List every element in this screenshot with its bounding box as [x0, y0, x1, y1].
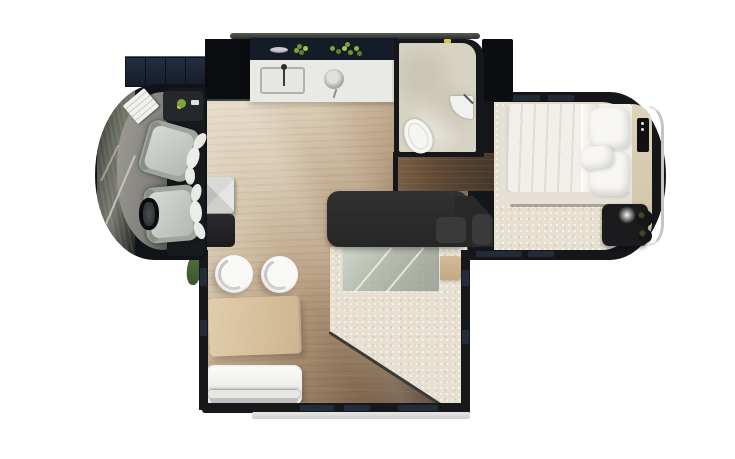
floorplan-canvas: [0, 0, 735, 459]
bottom-wall-window-2: [344, 405, 370, 411]
bedroom-window-bottom-1: [476, 251, 522, 257]
corridor-left-wall: [393, 152, 398, 192]
sofa-seat: [208, 390, 300, 398]
right-wall-window-2: [462, 330, 469, 344]
island-drawer-1: [436, 217, 466, 243]
faucet-stem: [283, 69, 285, 86]
kitchen-plate: [270, 47, 288, 53]
step-segment-4: [186, 58, 205, 86]
bedroom-plant-2: [638, 229, 652, 243]
tv-indicator-1: [641, 122, 644, 125]
bedside-lamp-glow: [618, 206, 636, 224]
bedroom-window-bottom-2: [528, 251, 554, 257]
console-plant: [177, 99, 186, 108]
tv-panel: [637, 118, 649, 152]
corridor-floor: [396, 153, 494, 191]
right-wall-window-1: [462, 270, 469, 286]
bedroom-window-top-2: [548, 95, 574, 101]
console-screen: [191, 100, 199, 105]
dining-table: [208, 295, 302, 356]
bottom-wall-window-1: [300, 405, 334, 411]
bedroom-area: [468, 92, 666, 260]
bathroom-area: [394, 39, 484, 157]
bedroom-step-block: [438, 256, 461, 280]
sofa: [206, 365, 302, 405]
herb-plant-1: [294, 48, 299, 53]
entry-door-panel: [205, 39, 253, 101]
bedroom-plant-1: [636, 210, 653, 227]
kitchen-galley: [250, 38, 398, 102]
glass-panel: [342, 246, 440, 292]
herb-plant-2: [330, 46, 335, 51]
entry-step-panel: [125, 56, 206, 87]
driver-cab: [95, 84, 207, 260]
bottom-wall-window-3: [398, 405, 438, 411]
tv-indicator-2: [641, 128, 644, 131]
pillow-top: [589, 107, 631, 151]
step-segment-3: [166, 58, 185, 86]
left-wall-window-1: [200, 268, 207, 286]
island-drawer-2: [472, 214, 492, 245]
yellow-accessory: [444, 39, 451, 43]
passenger-armrest-bottom: [185, 167, 196, 185]
duvet-folds: [508, 104, 581, 192]
step-segment-1: [126, 58, 145, 86]
step-segment-2: [146, 58, 165, 86]
sofa-backrest: [208, 367, 300, 390]
wardrobe-block: [482, 39, 513, 101]
steering-wheel: [139, 198, 159, 230]
center-console: [163, 91, 203, 121]
round-basin: [324, 69, 344, 89]
corridor-grain: [396, 153, 494, 191]
left-wall-window-2: [200, 320, 207, 336]
pouf-ottoman: [203, 177, 234, 213]
stool-left: [215, 255, 253, 293]
stool-right: [261, 256, 298, 293]
slideout-skirt: [252, 412, 470, 419]
